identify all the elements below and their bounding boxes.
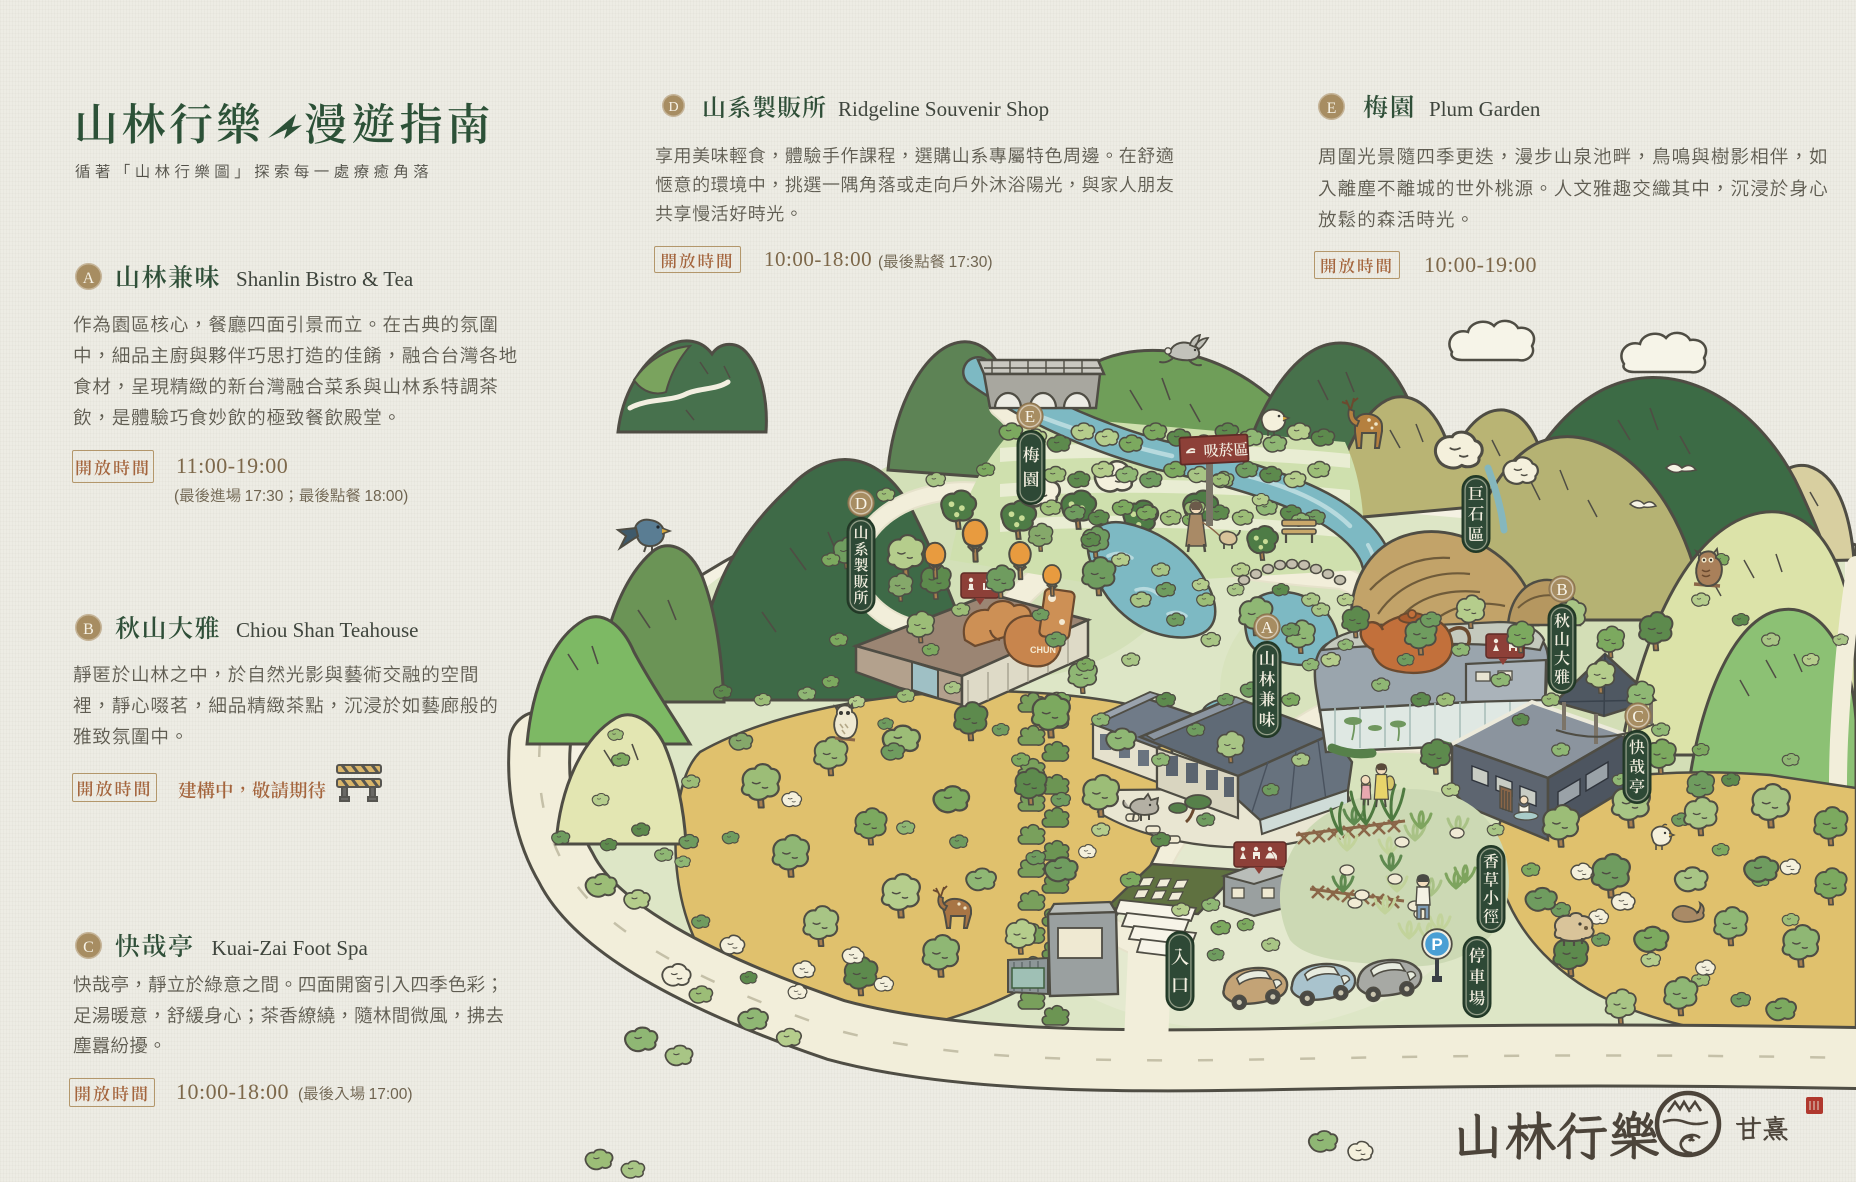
svg-text:D: D	[855, 489, 867, 514]
svg-text:吸菸區: 吸菸區	[1203, 438, 1249, 461]
svg-text:甘熹: 甘熹	[1735, 1110, 1789, 1146]
svg-text:場: 場	[1469, 985, 1486, 1009]
svg-text:B: B	[1556, 575, 1567, 600]
svg-text:E: E	[1025, 402, 1035, 427]
svg-text:山林行樂: 山林行樂	[1452, 1100, 1660, 1169]
svg-text:口: 口	[1171, 971, 1190, 997]
svg-text:C: C	[1632, 702, 1643, 727]
svg-text:園: 園	[1023, 466, 1040, 491]
svg-text:A: A	[1261, 613, 1274, 638]
svg-text:梅: 梅	[1023, 441, 1040, 466]
svg-text:所: 所	[853, 587, 868, 608]
svg-text:味: 味	[1259, 707, 1276, 731]
svg-text:亭: 亭	[1629, 774, 1645, 797]
svg-text:P: P	[1431, 935, 1442, 954]
svg-text:入: 入	[1171, 943, 1190, 969]
svg-text:徑: 徑	[1483, 904, 1499, 927]
svg-text:區: 區	[1468, 521, 1485, 545]
svg-text:雅: 雅	[1554, 665, 1570, 688]
